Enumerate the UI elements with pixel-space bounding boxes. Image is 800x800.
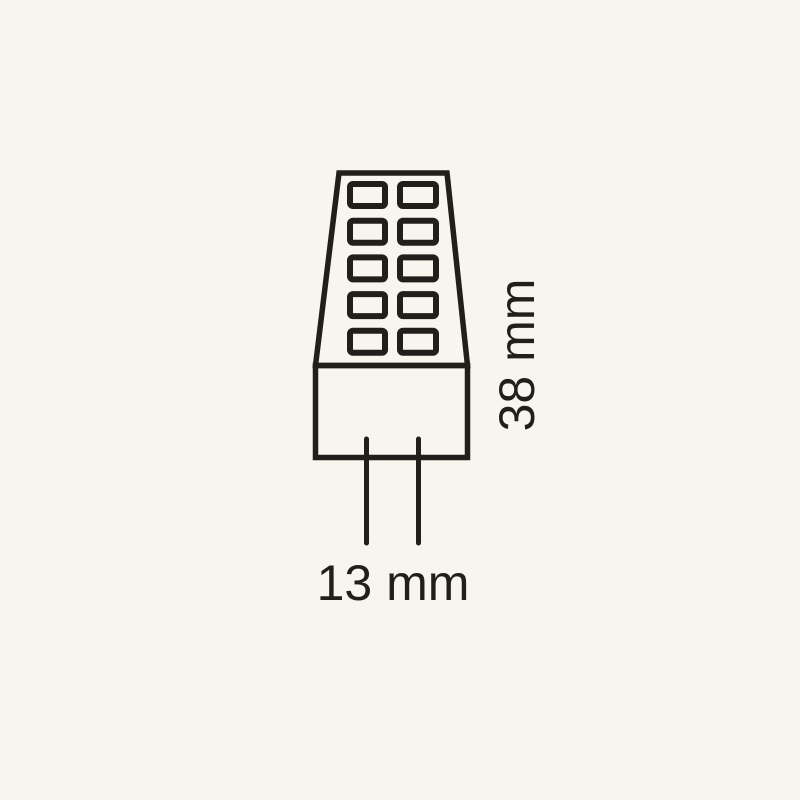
led-chip — [400, 294, 436, 316]
led-chip — [350, 331, 385, 353]
led-chip-grid — [350, 184, 436, 353]
product-dimension-diagram: 38 mm 13 mm — [0, 0, 800, 800]
led-chip — [400, 331, 436, 353]
bulb-dimension-drawing: 38 mm 13 mm — [0, 0, 800, 800]
led-chip — [400, 257, 436, 279]
led-chip — [350, 257, 385, 279]
led-chip — [400, 184, 436, 206]
pin-group — [367, 439, 419, 543]
led-chip — [400, 221, 436, 243]
led-chip — [350, 294, 385, 316]
bulb-base — [316, 366, 468, 458]
bulb-base-outline — [316, 366, 468, 458]
led-chip — [350, 184, 385, 206]
bulb-head-outline — [316, 173, 468, 366]
height-dimension-label: 38 mm — [489, 279, 545, 432]
bulb-head — [316, 173, 468, 366]
width-dimension-label: 13 mm — [317, 555, 470, 611]
led-chip — [350, 221, 385, 243]
